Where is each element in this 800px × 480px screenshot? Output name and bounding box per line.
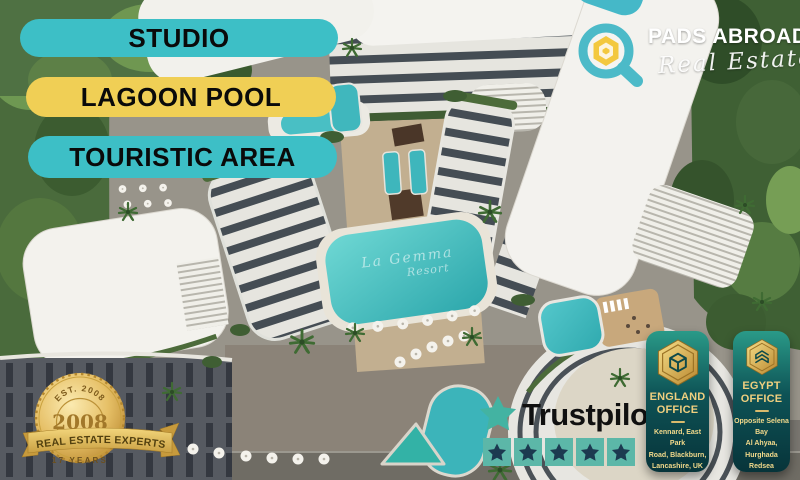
office-title-line1: ENGLAND bbox=[650, 391, 706, 404]
rating-star-icon bbox=[576, 438, 604, 466]
divider bbox=[671, 421, 685, 423]
divider bbox=[755, 410, 769, 412]
trustpilot-block: Trustpilot bbox=[478, 395, 658, 466]
office-title: EGYPT OFFICE bbox=[741, 380, 783, 405]
office-title: ENGLAND OFFICE bbox=[650, 391, 706, 416]
feature-banner-lagoon-pool: LAGOON POOL bbox=[26, 77, 336, 117]
magnifier-house-icon bbox=[576, 20, 646, 90]
rating-star-icon bbox=[607, 438, 635, 466]
trustpilot-rating-stars bbox=[483, 438, 658, 466]
office-card-egypt: EGYPT OFFICE Opposite Selena Bay Al Ahya… bbox=[733, 331, 790, 472]
office-title-line2: OFFICE bbox=[741, 393, 783, 406]
est-2008-gold-badge: EST. 2008 2008 REAL ESTATE EXPERTS 17 YE… bbox=[20, 371, 182, 477]
office-card-england: ENGLAND OFFICE Kennard, East Park Road, … bbox=[646, 331, 709, 472]
office-title-line1: EGYPT bbox=[741, 380, 783, 393]
rating-star-icon bbox=[483, 438, 511, 466]
trustpilot-wordmark: Trustpilot bbox=[522, 397, 658, 433]
brand-name: PADS ABROAD bbox=[648, 25, 800, 49]
promo-hero: La Gemma Resort STUDIO LAGOON POOL TOURI… bbox=[0, 0, 800, 480]
rating-star-icon bbox=[514, 438, 542, 466]
layers-hexagon-icon bbox=[741, 338, 783, 376]
office-address-line: Opposite Selena Bay bbox=[733, 416, 790, 438]
office-address-line: Hurghada Redsea bbox=[733, 450, 790, 472]
trustpilot-logo: Trustpilot bbox=[478, 395, 658, 433]
brand-logo: PADS ABROAD Real Estate bbox=[576, 20, 800, 90]
trustpilot-star-icon bbox=[478, 395, 518, 433]
office-address-line: Lancashire, UK bbox=[646, 461, 709, 472]
rating-star-icon bbox=[545, 438, 573, 466]
feature-banner-touristic-area: TOURISTIC AREA bbox=[28, 136, 337, 178]
badge-years-text: 17 YEARS bbox=[52, 456, 108, 465]
office-address: Opposite Selena Bay Al Ahyaa, Hurghada R… bbox=[733, 416, 790, 472]
office-address-line: Al Ahyaa, bbox=[733, 438, 790, 449]
office-address-line: Road, Blackburn, bbox=[646, 450, 709, 461]
office-title-line2: OFFICE bbox=[650, 404, 706, 417]
office-address-line: Kennard, East Park bbox=[646, 427, 709, 449]
feature-banner-studio: STUDIO bbox=[20, 19, 338, 57]
brand-text: PADS ABROAD Real Estate bbox=[648, 25, 800, 75]
brand-tagline: Real Estate bbox=[657, 45, 800, 79]
cube-hexagon-icon bbox=[655, 338, 701, 387]
office-address: Kennard, East Park Road, Blackburn, Lanc… bbox=[646, 427, 709, 472]
